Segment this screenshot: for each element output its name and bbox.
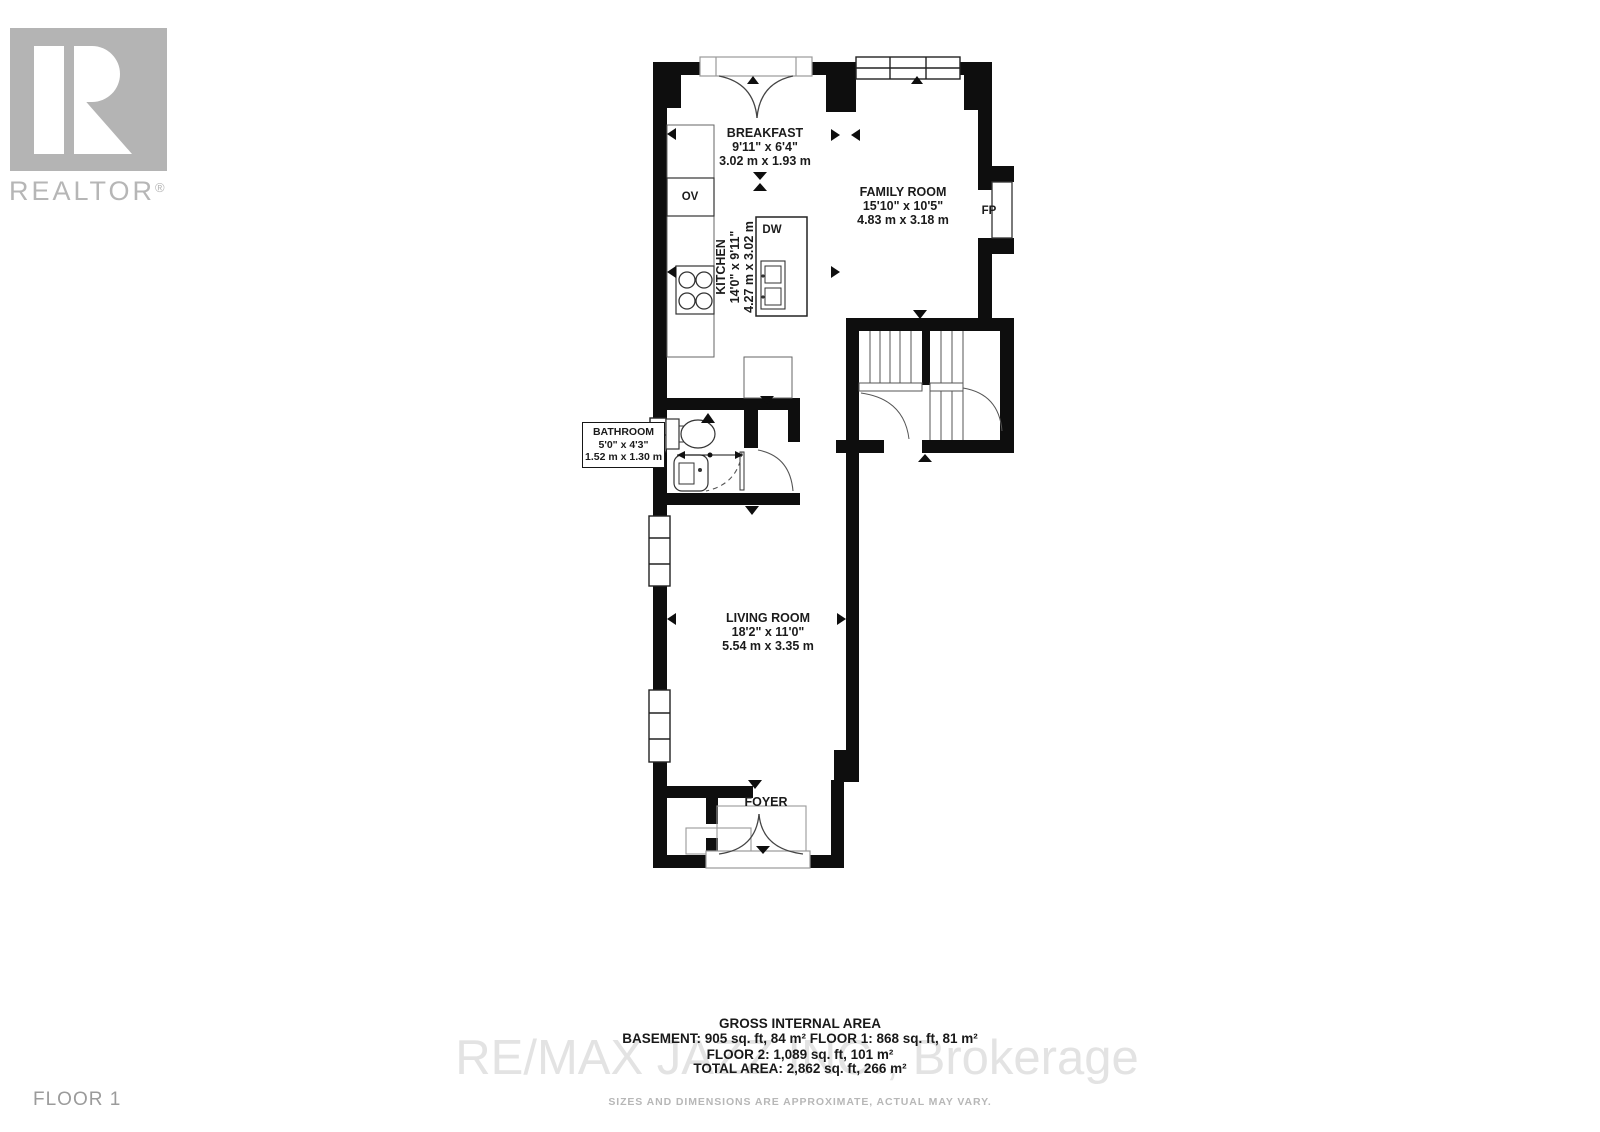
bathroom-sink bbox=[674, 455, 708, 491]
family-room-label: FAMILY ROOM 15'10" x 10'5" 4.83 m x 3.18… bbox=[857, 185, 949, 227]
living-room-window-lower bbox=[649, 690, 670, 762]
cooktop bbox=[676, 266, 714, 314]
breakfast-room-label: BREAKFAST 9'11" x 6'4" 3.02 m x 1.93 m bbox=[719, 126, 811, 168]
breakfast-patio-door bbox=[700, 57, 812, 118]
toilet bbox=[666, 419, 715, 449]
dishwasher-label: DW bbox=[762, 224, 781, 236]
room-dim-imperial: 9'11" x 6'4" bbox=[719, 140, 811, 154]
room-dim-metric: 1.52 m x 1.30 m bbox=[585, 451, 662, 464]
foyer-room-label: FOYER bbox=[744, 795, 787, 809]
room-dim-metric: 4.27 m x 3.02 m bbox=[742, 221, 756, 313]
area-total: TOTAL AREA: 2,862 sq. ft, 266 m² bbox=[693, 1061, 906, 1076]
island-sink bbox=[761, 261, 785, 309]
fireplace-label: FP bbox=[982, 205, 997, 217]
room-dim-imperial: 14'0" x 9'11" bbox=[728, 221, 742, 313]
room-dim-metric: 3.02 m x 1.93 m bbox=[719, 154, 811, 168]
floorplan-page: REALTOR® RE/MAX JAZZ INC., Brokerage BRE… bbox=[0, 0, 1600, 1132]
room-dim-metric: 4.83 m x 3.18 m bbox=[857, 213, 949, 227]
room-dim-imperial: 5'0" x 4'3" bbox=[585, 439, 662, 452]
room-name: BREAKFAST bbox=[719, 126, 811, 140]
stairs bbox=[859, 331, 1002, 440]
size-disclaimer: SIZES AND DIMENSIONS ARE APPROXIMATE, AC… bbox=[608, 1096, 991, 1108]
stair-door-arc-left bbox=[861, 393, 909, 439]
floor-number-label: FLOOR 1 bbox=[33, 1089, 121, 1111]
room-dim-imperial: 18'2" x 11'0" bbox=[722, 625, 814, 639]
gross-internal-area-title: GROSS INTERNAL AREA bbox=[719, 1016, 881, 1031]
pantry-box bbox=[744, 357, 792, 398]
kitchen-room-label: KITCHEN 14'0" x 9'11" 4.27 m x 3.02 m bbox=[714, 221, 756, 313]
room-name: KITCHEN bbox=[714, 221, 728, 313]
oven-label: OV bbox=[682, 191, 699, 203]
room-name: BATHROOM bbox=[585, 426, 662, 439]
closet-door-arc bbox=[758, 450, 793, 491]
living-room-label: LIVING ROOM 18'2" x 11'0" 5.54 m x 3.35 … bbox=[722, 611, 814, 653]
floorplan-drawing bbox=[0, 0, 1600, 1132]
room-name: LIVING ROOM bbox=[722, 611, 814, 625]
bathroom-fixtures bbox=[666, 419, 793, 491]
living-room-window-upper bbox=[649, 516, 670, 586]
stair-door-arc-right bbox=[963, 388, 1002, 431]
bathroom-door bbox=[706, 452, 744, 491]
room-dim-imperial: 15'10" x 10'5" bbox=[857, 199, 949, 213]
room-name: FAMILY ROOM bbox=[857, 185, 949, 199]
room-dim-metric: 5.54 m x 3.35 m bbox=[722, 639, 814, 653]
room-name: FOYER bbox=[744, 795, 787, 809]
area-basement-floor1: BASEMENT: 905 sq. ft, 84 m² FLOOR 1: 868… bbox=[622, 1031, 978, 1046]
kitchen-counter bbox=[667, 125, 714, 357]
bathroom-label-box: BATHROOM 5'0" x 4'3" 1.52 m x 1.30 m bbox=[582, 422, 665, 468]
family-room-window bbox=[856, 57, 960, 79]
area-floor2: FLOOR 2: 1,089 sq. ft, 101 m² bbox=[707, 1047, 894, 1062]
